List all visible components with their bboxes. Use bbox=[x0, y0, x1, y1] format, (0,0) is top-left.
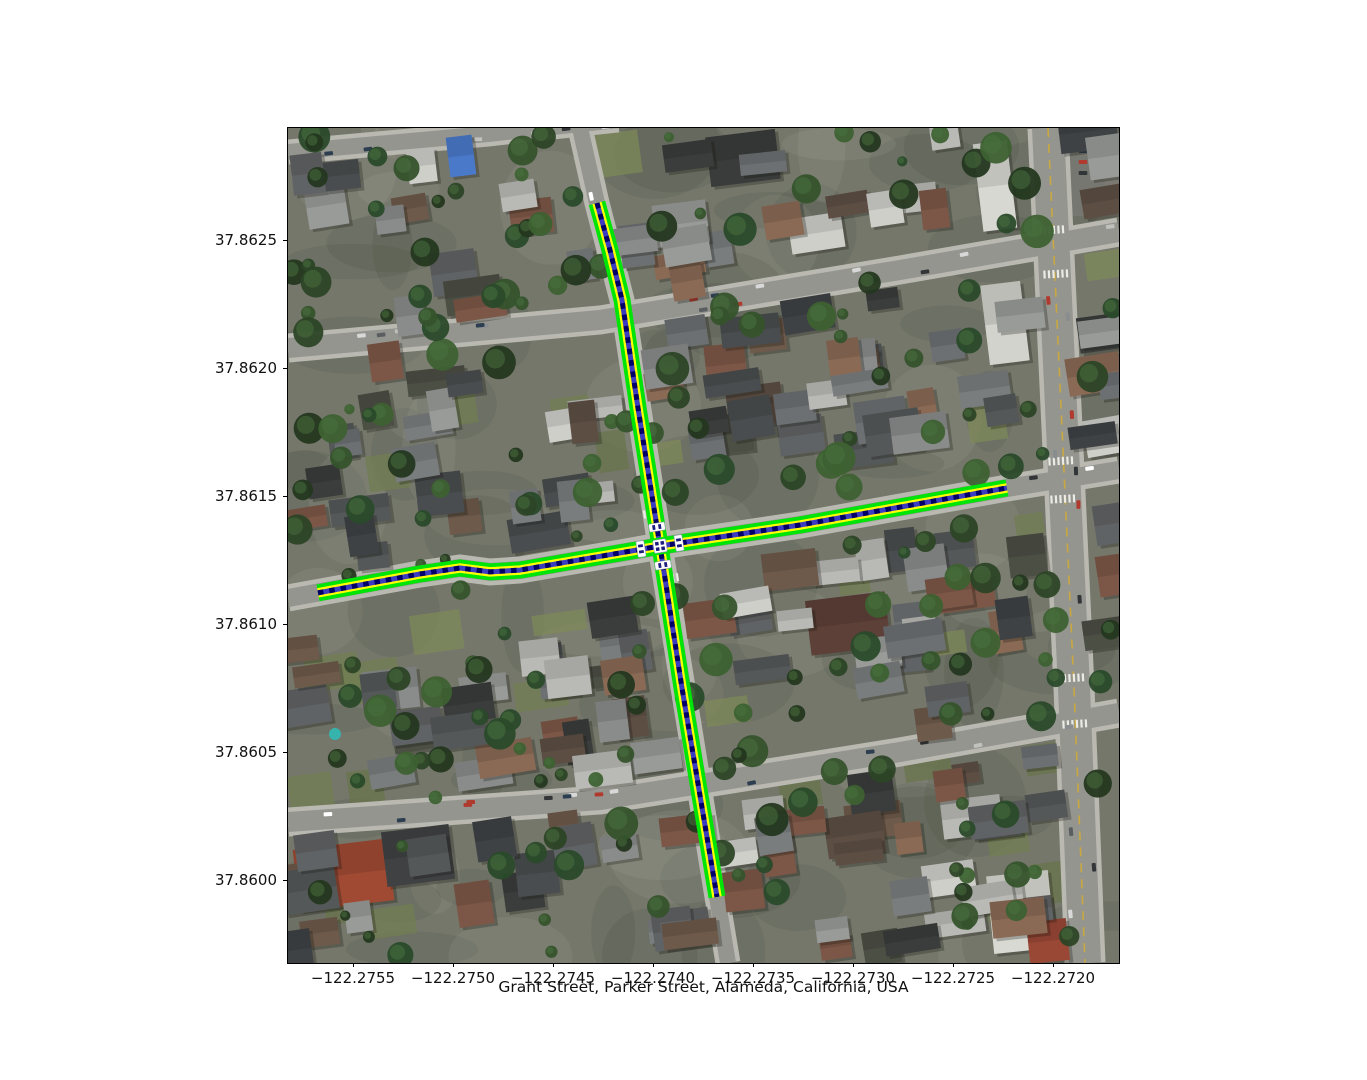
y-tick-label: 37.8620 bbox=[185, 359, 277, 377]
x-tick-mark bbox=[753, 963, 754, 967]
x-tick-mark bbox=[453, 963, 454, 967]
x-axis-label: Grant Street, Parker Street, Alameda, Ca… bbox=[287, 978, 1120, 996]
aerial-imagery bbox=[288, 128, 1119, 963]
figure: −122.2755−122.2750−122.2745−122.2740−122… bbox=[0, 0, 1367, 1080]
y-tick-label: 37.8600 bbox=[185, 871, 277, 889]
y-tick-mark bbox=[283, 880, 287, 881]
y-tick-label: 37.8625 bbox=[185, 231, 277, 249]
y-tick-mark bbox=[283, 496, 287, 497]
plot-area bbox=[287, 127, 1120, 964]
signal-marker bbox=[653, 539, 668, 554]
y-tick-mark bbox=[283, 240, 287, 241]
y-tick-label: 37.8605 bbox=[185, 743, 277, 761]
y-tick-mark bbox=[283, 752, 287, 753]
x-tick-mark bbox=[853, 963, 854, 967]
x-tick-mark bbox=[1053, 963, 1054, 967]
x-tick-mark bbox=[553, 963, 554, 967]
y-tick-mark bbox=[283, 368, 287, 369]
x-tick-mark bbox=[653, 963, 654, 967]
y-tick-label: 37.8615 bbox=[185, 487, 277, 505]
y-tick-label: 37.8610 bbox=[185, 615, 277, 633]
x-tick-mark bbox=[953, 963, 954, 967]
x-tick-mark bbox=[353, 963, 354, 967]
y-tick-mark bbox=[283, 624, 287, 625]
